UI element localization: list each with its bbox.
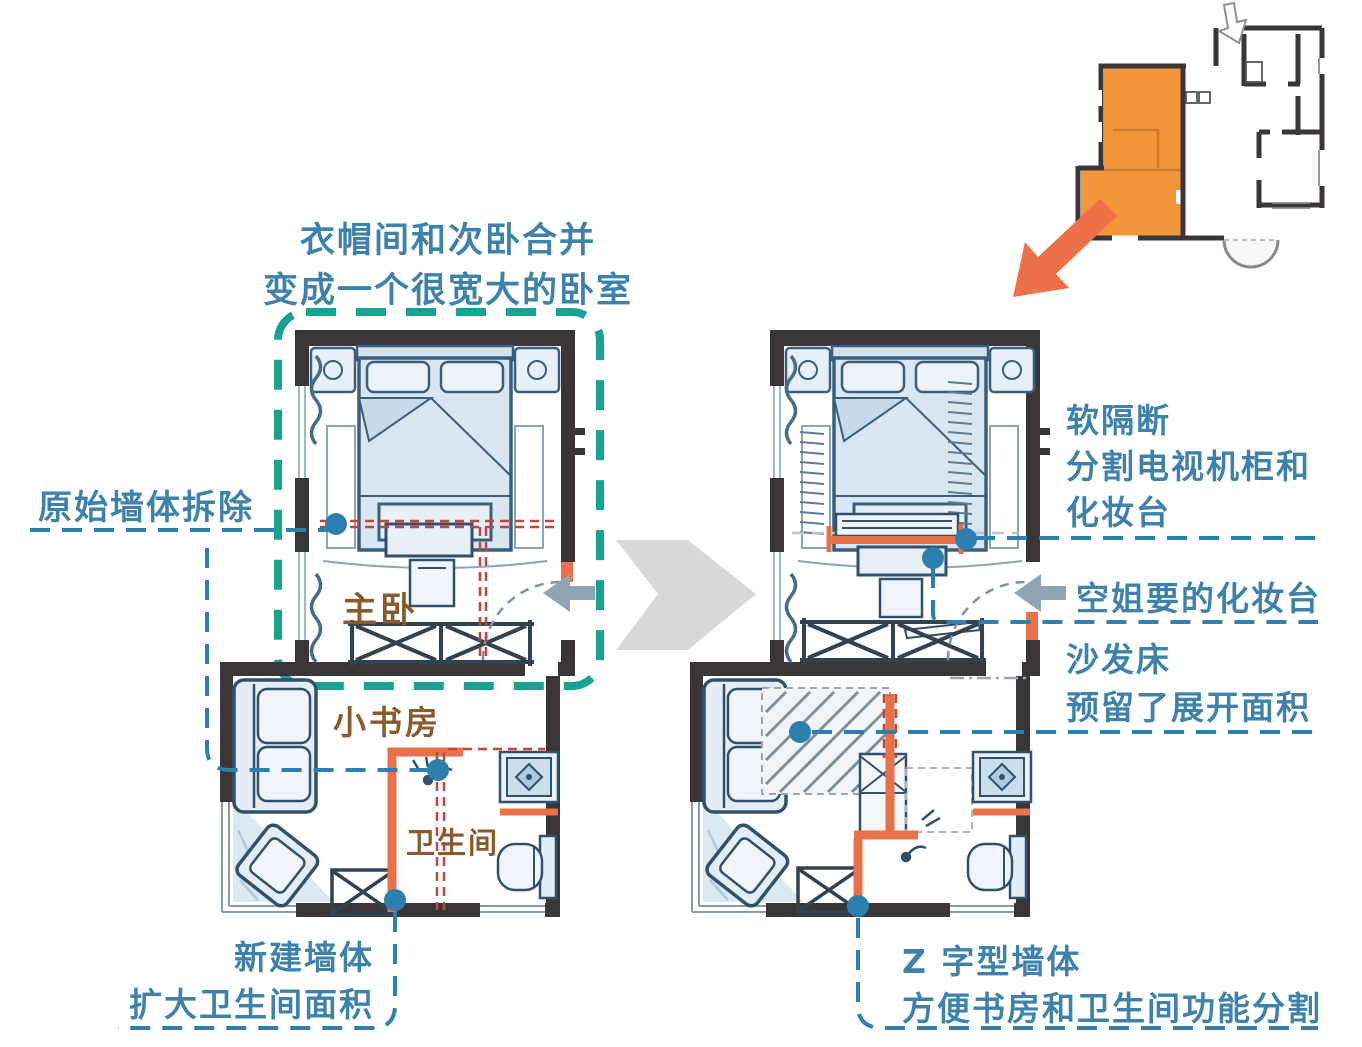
annotation-soft-partition-line2: 分割电视机柜和: [1066, 444, 1311, 490]
annotation-soft-partition-line1: 软隔断: [1066, 398, 1311, 444]
desk: [386, 524, 472, 556]
marker-dot: [955, 528, 977, 550]
annotation-sofa-bed: 沙发床 预留了展开面积: [1066, 636, 1311, 732]
marker-dot: [384, 889, 406, 911]
annotation-sofa-bed-line1: 沙发床: [1066, 636, 1311, 684]
annotation-merge-note-line2: 变成一个很宽大的卧室: [248, 266, 648, 316]
annotation-z-wall: Z 字型墙体 方便书房和卫生间功能分割: [902, 938, 1322, 1032]
stool: [880, 579, 922, 617]
tv-cabinet: [836, 514, 958, 536]
annotation-z-wall-line2: 方便书房和卫生间功能分割: [902, 985, 1322, 1032]
renovation-diagram: 衣帽间和次卧合并 变成一个很宽大的卧室 原始墙体拆除 主卧 小书房 卫生间 新建…: [0, 0, 1362, 1047]
annotation-z-wall-line1: Z 字型墙体: [902, 938, 1322, 985]
annotation-new-wall-line1: 新建墙体: [104, 934, 374, 981]
marker-dot: [325, 513, 347, 535]
marker-dot: [922, 547, 944, 569]
annotation-sofa-bed-line2: 预留了展开面积: [1066, 684, 1311, 732]
room-label-master-bedroom: 主卧: [342, 582, 418, 633]
transform-arrow-icon: [616, 540, 756, 650]
annotation-new-wall-line2: 扩大卫生间面积: [104, 981, 374, 1028]
annotation-soft-partition-line3: 化妆台: [1066, 490, 1311, 536]
annotation-soft-partition: 软隔断 分割电视机柜和 化妆台: [1066, 398, 1311, 536]
locator-arrow-icon: [1013, 199, 1117, 297]
pointer-arrow-icon: [1014, 574, 1066, 612]
room-label-bathroom: 卫生间: [406, 820, 499, 862]
planned-fixture-outline: [906, 768, 972, 832]
annotation-original-wall: 原始墙体拆除: [38, 480, 254, 529]
annotation-merge-note: 衣帽间和次卧合并 变成一个很宽大的卧室: [248, 216, 648, 316]
marker-dot: [789, 721, 811, 743]
marker-dot: [427, 759, 449, 781]
storage-cabinet: [860, 754, 906, 832]
annotation-dressing-table: 空姐要的化妆台: [1076, 572, 1321, 620]
marker-dot: [847, 895, 869, 917]
new-wall-door-jamb: [1026, 612, 1038, 640]
room-label-study: 小书房: [333, 696, 441, 744]
overview-mini-plan: [1013, 3, 1322, 297]
annotation-merge-note-line1: 衣帽间和次卧合并: [248, 216, 648, 266]
annotation-new-wall: 新建墙体 扩大卫生间面积: [104, 934, 374, 1028]
balcony-arc: [1224, 240, 1278, 267]
pointer-arrow-icon: [543, 574, 595, 612]
